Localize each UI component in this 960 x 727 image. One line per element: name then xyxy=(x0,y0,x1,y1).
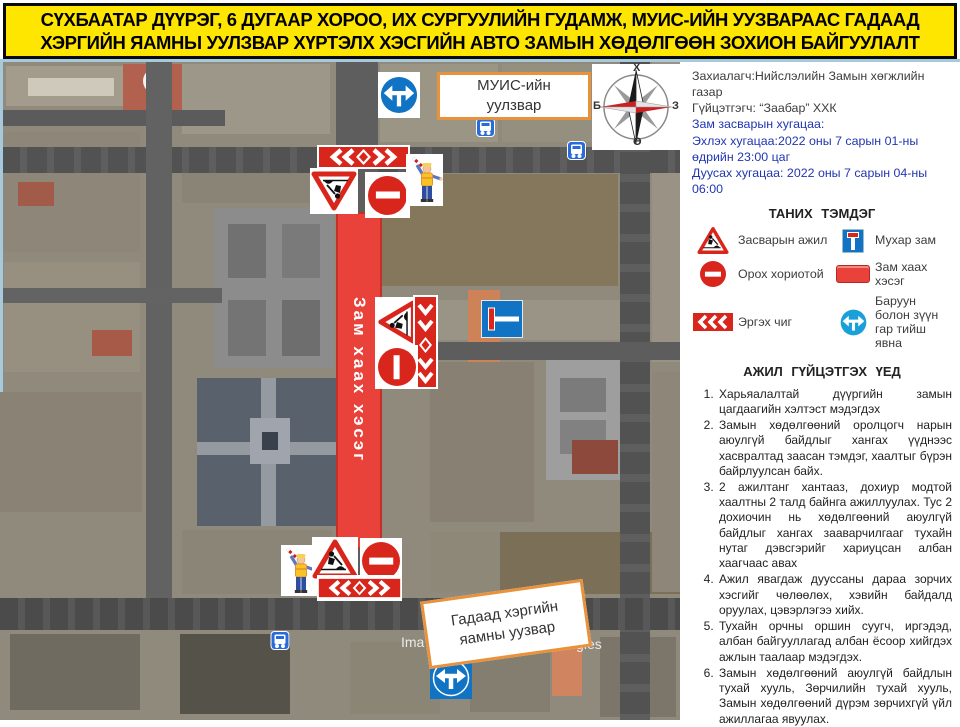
bus-stop-icon xyxy=(270,631,290,655)
client-text: Захиалагч:Нийслэлийн Замын хөгжлийн газа… xyxy=(692,68,952,100)
compass-north-label: Х xyxy=(633,62,640,74)
dead-end-sign xyxy=(481,300,523,338)
map-area: Зам хаах хэсэг МУИС-ийн уулзвар xyxy=(0,62,680,720)
title-line-1: СҮХБААТАР ДҮҮРЭГ, 6 ДУГААР ХОРОО, ИХ СУР… xyxy=(41,8,920,31)
legend-heading: ТАНИХ ТЭМДЭГ xyxy=(692,206,952,221)
compass-east-label: З xyxy=(672,100,679,112)
contractor-text: Гүйцэтгэгч: “Заабар” ХХК xyxy=(692,100,952,116)
compass-rose: Х Ө Б З xyxy=(592,64,680,150)
procedure-item: 2 ажилтанг хантааз, дохиур модтой хаалтн… xyxy=(717,480,952,571)
legend-label: Зам хаах хэсэг xyxy=(870,260,952,289)
divider xyxy=(0,62,3,392)
duration-heading: Зам засварын хугацаа: xyxy=(692,116,952,132)
procedure-item: Ажил явагдаж дууссаны дараа зорчих хэсги… xyxy=(717,572,952,618)
title-banner: СҮХБААТАР ДҮҮРЭГ, 6 ДУГААР ХОРОО, ИХ СУР… xyxy=(3,3,957,59)
map-watermark: Ima xyxy=(401,634,424,650)
roadwork-sign xyxy=(310,168,358,214)
title-line-2: ХЭРГИЙН ЯАМНЫ УУЛЗВАР ХҮРТЭЛХ ХЭСГИЙН АВ… xyxy=(40,31,919,54)
start-date-text: Эхлэх хугацаа:2022 оны 7 сарын 01-ны өдр… xyxy=(692,133,952,165)
end-date-text: Дуусах хугацаа: 2022 оны 7 сарын 04-ны 0… xyxy=(692,165,952,197)
no-entry-sign xyxy=(365,172,410,218)
both-directions-icon xyxy=(380,76,418,114)
road-closure-text: Зам хаах хэсэг xyxy=(349,297,369,463)
legend-row: Орох хориотой Зам хаах хэсэг xyxy=(692,260,952,289)
both-directions-sign-icon xyxy=(836,309,870,336)
legend-row: Засварын ажил Мухар зам xyxy=(692,226,952,255)
chevron-board-icon xyxy=(692,312,734,332)
both-directions-sign xyxy=(378,72,420,118)
compass-south-label: Ө xyxy=(633,136,642,148)
legend-label: Орох хориотой xyxy=(734,267,836,281)
roadwork-sign-icon xyxy=(692,226,734,255)
flagman-figure xyxy=(406,154,443,206)
procedure-item: Харьяалалтай дүүргийн замын цагдаагийн х… xyxy=(717,387,952,417)
procedure-item: Замын хөдөлгөөний аюулгүй байдлын тухай … xyxy=(717,666,952,727)
procedure-item: Замын хөдөлгөөний оролцогч нарын аюулгүй… xyxy=(717,418,952,479)
bus-stop-icon xyxy=(567,141,586,165)
procedure-item: Тухайн орчны оршин суугч, иргэдэд, албан… xyxy=(717,619,952,665)
legend-label: Засварын ажил xyxy=(734,233,836,247)
info-panel: Захиалагч:Нийслэлийн Замын хөгжлийн газа… xyxy=(680,62,960,720)
dead-end-sign-icon xyxy=(836,229,870,253)
intersection-label-muis: МУИС-ийн уулзвар xyxy=(437,72,591,120)
procedures-list: Харьяалалтай дүүргийн замын цагдаагийн х… xyxy=(692,387,952,727)
label-line: уулзвар xyxy=(487,96,542,116)
turn-chevron-board xyxy=(317,145,410,169)
compass-west-label: Б xyxy=(593,100,601,112)
legend-label: Мухар зам xyxy=(870,233,952,247)
turn-chevron-board xyxy=(317,575,402,601)
no-entry-sign-icon xyxy=(692,261,734,287)
legend-label: Баруун болон зүүн гар тийш явна xyxy=(870,294,952,351)
no-entry-sign-rotated xyxy=(375,345,418,389)
divider xyxy=(0,59,960,62)
road-closed-bar-icon xyxy=(836,265,870,283)
legend-label: Эргэх чиг xyxy=(734,315,836,329)
bus-stop-icon xyxy=(476,118,495,142)
legend-row: Эргэх чиг Баруун болон зүүн гар тийш явн… xyxy=(692,294,952,351)
procedures-heading: АЖИЛ ГҮЙЦЭТГЭХ ҮЕД xyxy=(692,364,952,379)
label-line: МУИС-ийн xyxy=(477,76,551,96)
